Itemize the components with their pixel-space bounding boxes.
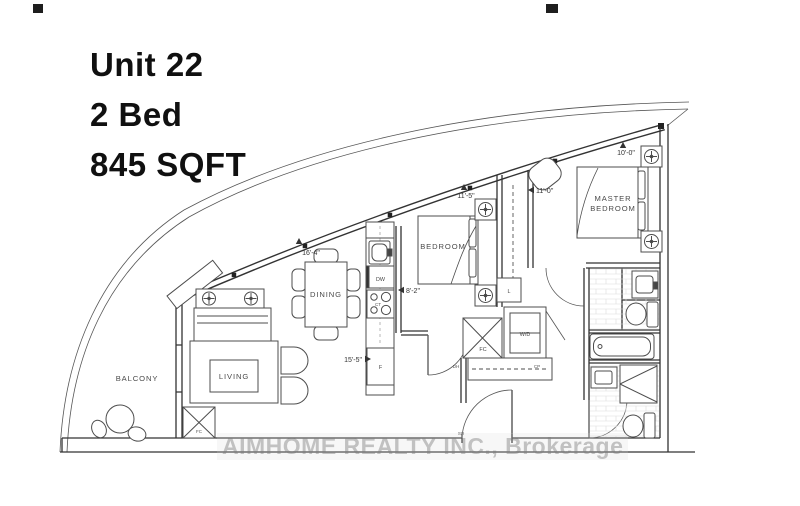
dim-master-length: 10'-0" [617, 150, 635, 157]
entry-door [462, 390, 512, 438]
dim-living-width: 16'-4" [302, 250, 320, 257]
room-label-bedroom: BEDROOM [420, 242, 466, 251]
dim-bedroom-width: 8'-2" [406, 288, 420, 295]
armchair [281, 377, 308, 404]
dim-master-width: 11'-0" [536, 188, 554, 195]
label-living-closet: FC [196, 429, 203, 434]
label-door-hw: DH [453, 364, 460, 369]
room-label-balcony: BALCONY [116, 374, 159, 383]
floor-plan-drawing: BALCONY LIVING DINING BEDROOM MASTER BED… [0, 0, 800, 506]
room-label-master-2: BEDROOM [590, 204, 636, 213]
second-bedroom [418, 199, 496, 306]
dim-living-length: 15'-5" [344, 357, 362, 364]
label-linen: L [508, 289, 511, 295]
armchair [281, 347, 308, 374]
dim-bedroom-length: 11'-5" [457, 193, 475, 200]
main-bathroom [591, 365, 657, 438]
room-label-master-1: MASTER [594, 194, 631, 203]
label-cooktop: CT [375, 302, 381, 307]
label-foyer-closet: FC [479, 347, 486, 353]
room-label-dining: DINING [310, 290, 342, 299]
living-room-furniture [190, 289, 308, 404]
brokerage-watermark: AIMHOME REALTY INC., Brokerage [217, 433, 628, 460]
label-washer-dryer: W/D [520, 332, 531, 338]
room-label-living: LIVING [219, 372, 249, 381]
label-dishwasher: DW [376, 277, 386, 283]
sofa-back [194, 308, 271, 342]
label-carpet: CP [534, 364, 540, 369]
floor-plan-page: { "title": { "unit": "Unit 22", "beds": … [0, 0, 800, 506]
